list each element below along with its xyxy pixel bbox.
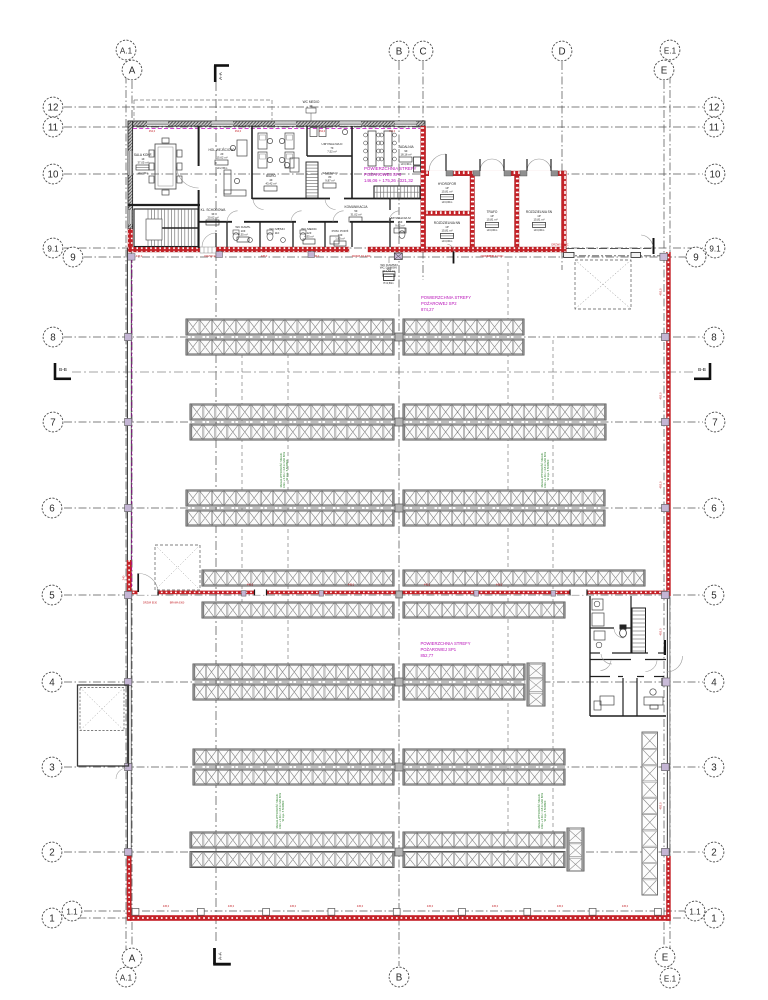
svg-text:W wys. 5 500/600: W wys. 5 500/600	[281, 800, 285, 821]
svg-text:BRAMA EI60: BRAMA EI60	[170, 602, 185, 605]
svg-text:DRZWI D1 EI30: DRZWI D1 EI30	[352, 254, 371, 258]
svg-text:1: 1	[49, 913, 54, 924]
svg-text:POWIERZCHNIA STREFY: POWIERZCHNIA STREFY	[421, 295, 471, 300]
svg-text:H=2,95m: H=2,95m	[217, 166, 228, 170]
svg-text:2: 2	[49, 847, 54, 858]
svg-text:3: 3	[711, 762, 717, 773]
svg-text:A.1: A.1	[120, 973, 133, 982]
svg-text:POŻAROWEJ SP3: POŻAROWEJ SP3	[364, 172, 402, 177]
svg-text:4P 1,52 m²: 4P 1,52 m²	[382, 269, 395, 273]
svg-text:852,77: 852,77	[421, 653, 434, 658]
svg-text:11: 11	[709, 122, 719, 133]
svg-text:B: B	[396, 972, 403, 983]
svg-text:445,0: 445,0	[496, 584, 503, 587]
svg-text:11F: 11F	[275, 231, 280, 235]
svg-text:1.1: 1.1	[689, 907, 701, 916]
svg-text:20,62 m²: 20,62 m²	[207, 216, 218, 220]
svg-text:W wys. 5 500/600: W wys. 5 500/600	[546, 459, 550, 480]
svg-text:9,62 m²: 9,62 m²	[395, 223, 405, 227]
svg-text:454,0: 454,0	[319, 130, 326, 133]
svg-text:1: 1	[711, 913, 716, 924]
svg-text:445,0: 445,0	[247, 584, 254, 587]
svg-text:A: A	[129, 953, 136, 964]
svg-text:11: 11	[48, 122, 58, 133]
svg-text:12: 12	[709, 102, 720, 113]
svg-text:15,81 m²: 15,81 m²	[486, 218, 497, 222]
svg-text:E: E	[662, 952, 669, 963]
svg-text:4,35 m²: 4,35 m²	[238, 232, 248, 236]
svg-text:10: 10	[48, 169, 59, 180]
svg-text:37,05 m²: 37,05 m²	[137, 161, 148, 165]
svg-text:146,06 + 175,26 =321,32: 146,06 + 175,26 =321,32	[364, 178, 414, 183]
svg-text:445,0: 445,0	[557, 905, 564, 908]
svg-text:POWIERZCHNIA STREFY: POWIERZCHNIA STREFY	[421, 641, 471, 646]
svg-text:B-B: B-B	[698, 367, 706, 372]
svg-text:15,81 m²: 15,81 m²	[441, 190, 452, 194]
svg-text:31,02 m²: 31,02 m²	[350, 213, 361, 217]
svg-text:15,62 m²: 15,62 m²	[216, 156, 227, 160]
svg-text:5: 5	[711, 590, 717, 601]
svg-text:E.1: E.1	[664, 974, 677, 983]
svg-text:445,0: 445,0	[427, 905, 434, 908]
svg-text:10: 10	[710, 169, 721, 180]
svg-text:POŻAROWEJ SP2: POŻAROWEJ SP2	[421, 301, 457, 306]
svg-text:6: 6	[49, 503, 55, 514]
svg-text:5: 5	[49, 590, 55, 601]
svg-text:3: 3	[49, 762, 55, 773]
svg-text:445,0: 445,0	[622, 905, 629, 908]
svg-text:H=3,00m: H=3,00m	[487, 228, 498, 232]
svg-text:454,0: 454,0	[235, 130, 242, 133]
svg-text:493,0: 493,0	[659, 802, 663, 809]
svg-text:W wys. 5 500/600: W wys. 5 500/600	[543, 800, 547, 821]
svg-text:493,0: 493,0	[659, 392, 663, 399]
svg-text:WC DAMSKI: WC DAMSKI	[380, 265, 398, 269]
svg-text:445,0: 445,0	[261, 254, 268, 258]
svg-text:4: 4	[49, 677, 55, 688]
svg-text:493,0: 493,0	[659, 481, 663, 488]
svg-text:W wys. 5 500/600: W wys. 5 500/600	[285, 459, 289, 480]
svg-text:E.1: E.1	[664, 46, 677, 55]
svg-text:454,0: 454,0	[149, 130, 156, 133]
svg-text:445,0: 445,0	[424, 584, 431, 587]
svg-text:1,80 m²: 1,80 m²	[335, 236, 345, 240]
svg-text:POWIERZCHNIA STREFY: POWIERZCHNIA STREFY	[364, 166, 417, 171]
svg-text:B: B	[396, 46, 403, 57]
svg-text:4,35 m²: 4,35 m²	[304, 234, 314, 238]
svg-text:D: D	[558, 46, 565, 57]
svg-text:7,52 m²: 7,52 m²	[327, 149, 337, 153]
svg-text:4F: 4F	[309, 104, 313, 108]
svg-text:A: A	[129, 65, 136, 76]
svg-text:6: 6	[711, 503, 717, 514]
svg-text:DRZWI EI 60С: DRZWI EI 60С	[551, 243, 568, 247]
svg-text:POŻAROWEJ SP1: POŻAROWEJ SP1	[421, 647, 457, 652]
svg-text:9.1: 9.1	[47, 244, 59, 253]
svg-text:445,0: 445,0	[136, 254, 143, 258]
svg-text:9.1: 9.1	[709, 244, 721, 253]
svg-text:H=2,95m: H=2,95m	[138, 171, 149, 175]
svg-text:493,0: 493,0	[659, 288, 663, 295]
svg-text:9,87 m²: 9,87 m²	[325, 178, 335, 182]
svg-text:12: 12	[48, 102, 59, 113]
svg-text:A.1: A.1	[120, 46, 133, 55]
svg-text:8: 8	[50, 332, 56, 343]
svg-text:H=2,50m: H=2,50m	[383, 282, 393, 285]
svg-text:445,0: 445,0	[290, 905, 297, 908]
svg-text:445,0: 445,0	[348, 584, 355, 587]
svg-text:9: 9	[693, 252, 698, 263]
svg-text:445,0: 445,0	[492, 905, 499, 908]
svg-text:43,42 m²: 43,42 m²	[265, 182, 276, 186]
svg-text:B-B: B-B	[59, 367, 67, 372]
svg-text:874,27: 874,27	[421, 307, 434, 312]
svg-text:18,16 m²: 18,16 m²	[400, 153, 411, 157]
svg-text:7: 7	[50, 417, 55, 428]
svg-text:15,81 m²: 15,81 m²	[533, 218, 544, 222]
svg-text:A-A: A-A	[218, 71, 223, 80]
svg-text:H=3,00m: H=3,00m	[534, 228, 545, 232]
svg-text:H=3,00m: H=3,00m	[442, 200, 453, 204]
svg-text:445,0: 445,0	[228, 905, 235, 908]
svg-text:8: 8	[711, 332, 717, 343]
svg-text:9: 9	[70, 252, 75, 263]
svg-text:H=3,30m: H=3,30m	[401, 162, 412, 166]
svg-text:445,0: 445,0	[357, 905, 364, 908]
svg-text:7: 7	[712, 417, 717, 428]
svg-text:A-A: A-A	[218, 951, 223, 960]
svg-text:H=3,00m: H=3,00m	[442, 239, 453, 243]
svg-text:15,81 m²: 15,81 m²	[441, 229, 452, 233]
svg-text:C: C	[419, 46, 426, 57]
svg-text:2: 2	[711, 847, 716, 858]
svg-text:4: 4	[711, 677, 717, 688]
svg-text:445,0: 445,0	[163, 905, 170, 908]
svg-text:1.1: 1.1	[66, 907, 78, 916]
svg-text:DRZWI EI30: DRZWI EI30	[143, 602, 158, 605]
svg-text:493,0: 493,0	[659, 628, 663, 635]
svg-text:DRZWI D2 EI 60С: DRZWI D2 EI 60С	[481, 254, 504, 258]
svg-text:E: E	[661, 65, 668, 76]
svg-text:240: 240	[122, 575, 126, 580]
